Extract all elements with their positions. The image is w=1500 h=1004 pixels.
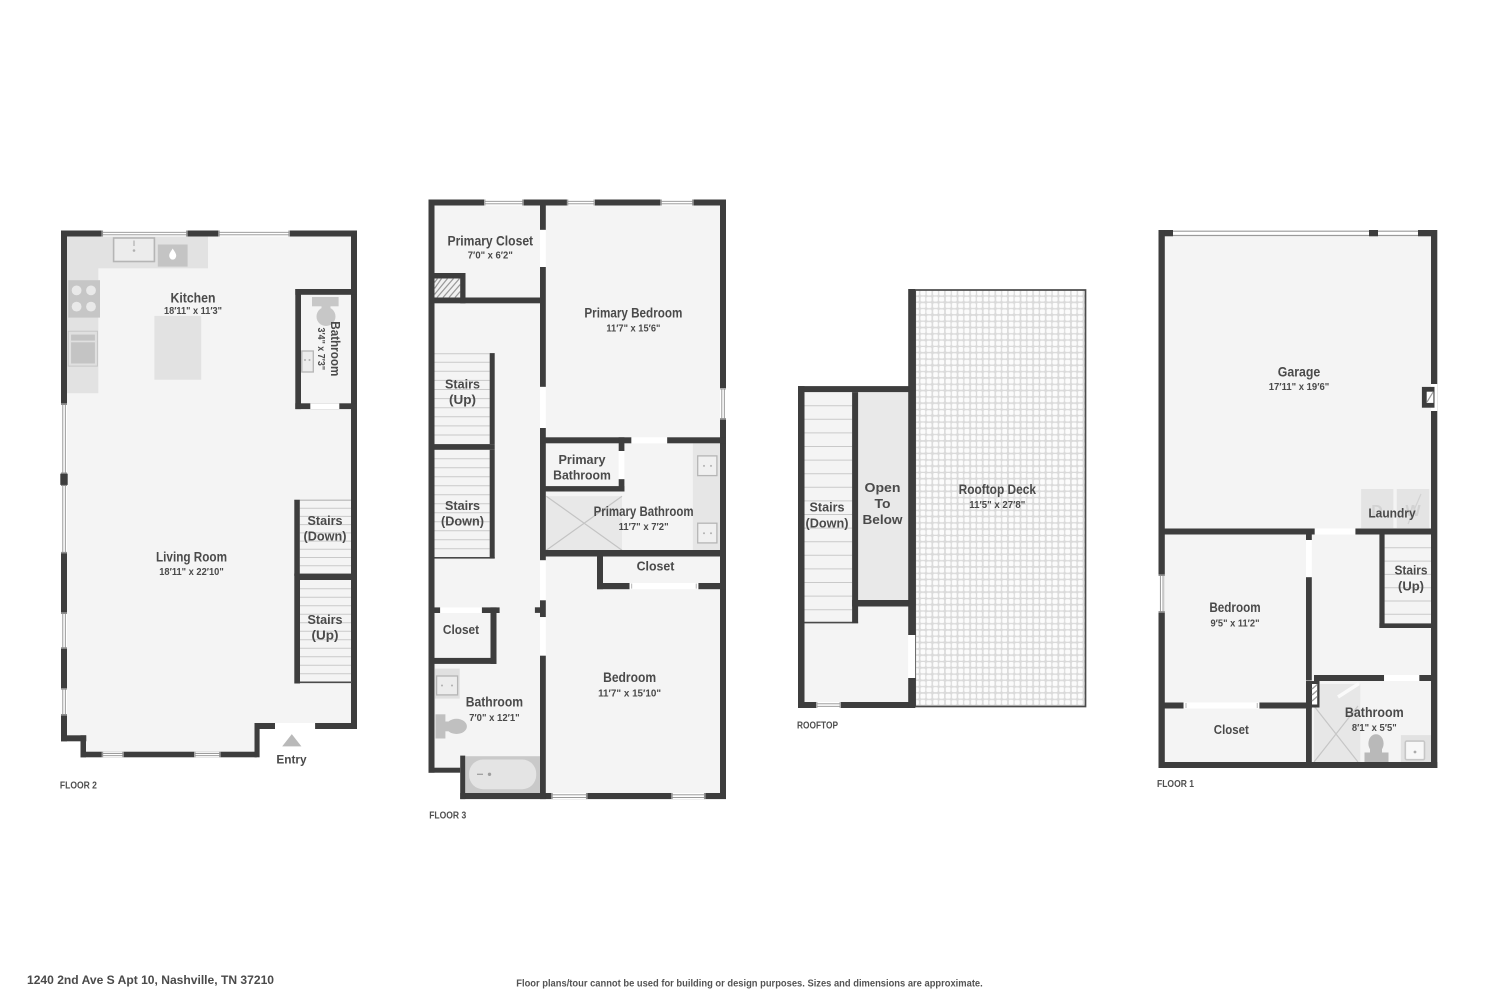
svg-text:Bathroom: Bathroom — [553, 468, 611, 483]
svg-text:(Down): (Down) — [806, 516, 849, 531]
svg-text:Stairs: Stairs — [445, 377, 480, 392]
svg-text:Rooftop Deck: Rooftop Deck — [959, 481, 1036, 497]
svg-text:Living Room: Living Room — [156, 550, 227, 565]
svg-text:Closet: Closet — [443, 622, 480, 637]
svg-text:Closet: Closet — [637, 559, 675, 574]
svg-text:1240 2nd Ave S Apt 10, Nashvil: 1240 2nd Ave S Apt 10, Nashville, TN 372… — [27, 973, 274, 987]
svg-text:Open: Open — [865, 480, 901, 495]
svg-text:Stairs: Stairs — [445, 498, 480, 513]
svg-text:Garage: Garage — [1278, 365, 1321, 380]
svg-text:11′7" x 15′6": 11′7" x 15′6" — [606, 322, 660, 334]
svg-text:FLOOR 3: FLOOR 3 — [429, 810, 466, 821]
svg-text:Primary Bedroom: Primary Bedroom — [584, 305, 682, 320]
svg-text:11′7" x 15′10": 11′7" x 15′10" — [598, 687, 661, 699]
svg-text:(Down): (Down) — [441, 514, 484, 529]
svg-text:17′11" x 19′6": 17′11" x 19′6" — [1269, 381, 1330, 393]
svg-text:Stairs: Stairs — [308, 513, 343, 528]
svg-text:Stairs: Stairs — [810, 500, 845, 515]
svg-text:9′5" x 11′2": 9′5" x 11′2" — [1211, 617, 1260, 629]
svg-text:Stairs: Stairs — [1394, 563, 1427, 578]
svg-text:Bathroom: Bathroom — [328, 321, 343, 376]
svg-text:7′0" x 12′1": 7′0" x 12′1" — [469, 712, 520, 724]
svg-text:3′4" x 7′3": 3′4" x 7′3" — [315, 328, 326, 371]
svg-text:Bedroom: Bedroom — [1209, 600, 1260, 615]
svg-text:11′5" x 27′8": 11′5" x 27′8" — [969, 499, 1025, 511]
svg-text:(Up): (Up) — [449, 392, 476, 407]
svg-text:Bathroom: Bathroom — [1345, 705, 1404, 720]
svg-text:8′1" x 5′5": 8′1" x 5′5" — [1352, 722, 1397, 734]
svg-text:Kitchen: Kitchen — [171, 290, 216, 305]
svg-text:7′0" x 6′2": 7′0" x 6′2" — [468, 250, 513, 262]
svg-text:Primary Bathroom: Primary Bathroom — [594, 504, 694, 519]
svg-text:FLOOR 2: FLOOR 2 — [60, 781, 97, 792]
svg-text:(Up): (Up) — [312, 628, 339, 643]
svg-text:Primary Closet: Primary Closet — [448, 234, 534, 249]
svg-text:Laundry: Laundry — [1368, 505, 1416, 520]
svg-text:18′11" x 11′3": 18′11" x 11′3" — [164, 305, 222, 317]
svg-text:Entry: Entry — [276, 755, 307, 767]
svg-text:Primary: Primary — [559, 452, 607, 467]
svg-text:Bedroom: Bedroom — [603, 670, 656, 685]
svg-text:ROOFTOP: ROOFTOP — [797, 721, 838, 732]
svg-text:Stairs: Stairs — [308, 612, 343, 627]
svg-text:Closet: Closet — [1214, 722, 1250, 737]
svg-text:FLOOR 1: FLOOR 1 — [1157, 779, 1194, 790]
svg-text:Floor plans/tour cannot be use: Floor plans/tour cannot be used for buil… — [516, 979, 983, 990]
svg-text:To: To — [875, 496, 891, 511]
svg-text:(Up): (Up) — [1398, 579, 1424, 594]
svg-text:Bathroom: Bathroom — [466, 695, 523, 710]
svg-text:(Down): (Down) — [304, 529, 347, 544]
svg-text:Below: Below — [863, 512, 904, 527]
svg-text:18′11" x 22′10": 18′11" x 22′10" — [159, 566, 224, 578]
svg-text:11′7" x 7′2": 11′7" x 7′2" — [619, 521, 669, 533]
